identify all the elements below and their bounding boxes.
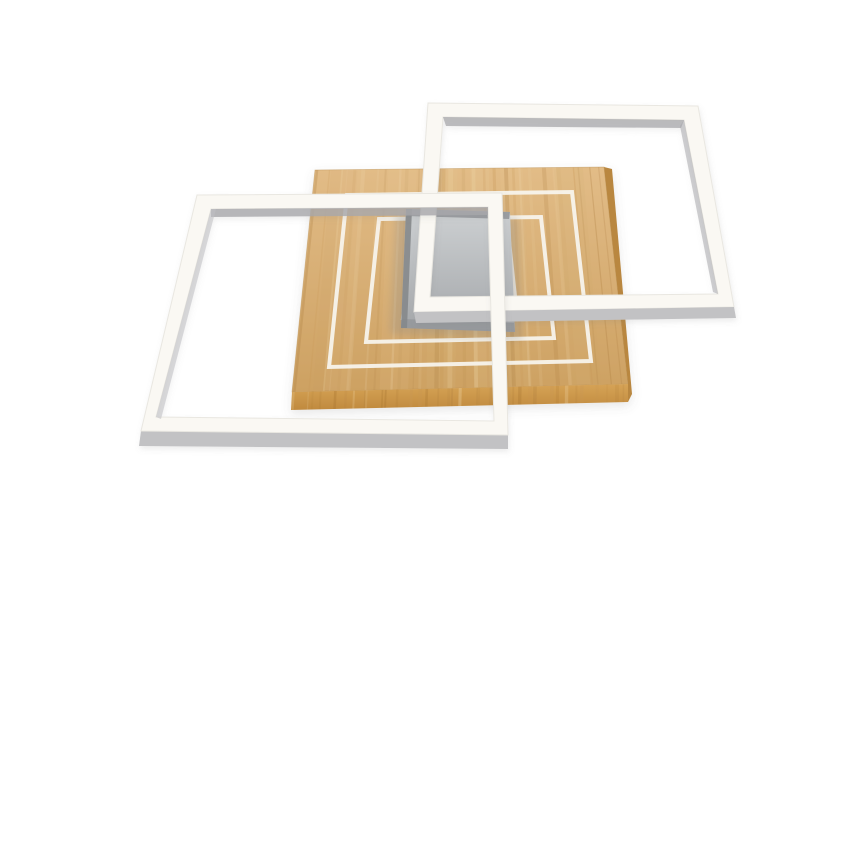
scene-canvas bbox=[40, 16, 865, 866]
product-photo-led-ceiling-lamp bbox=[40, 16, 865, 866]
